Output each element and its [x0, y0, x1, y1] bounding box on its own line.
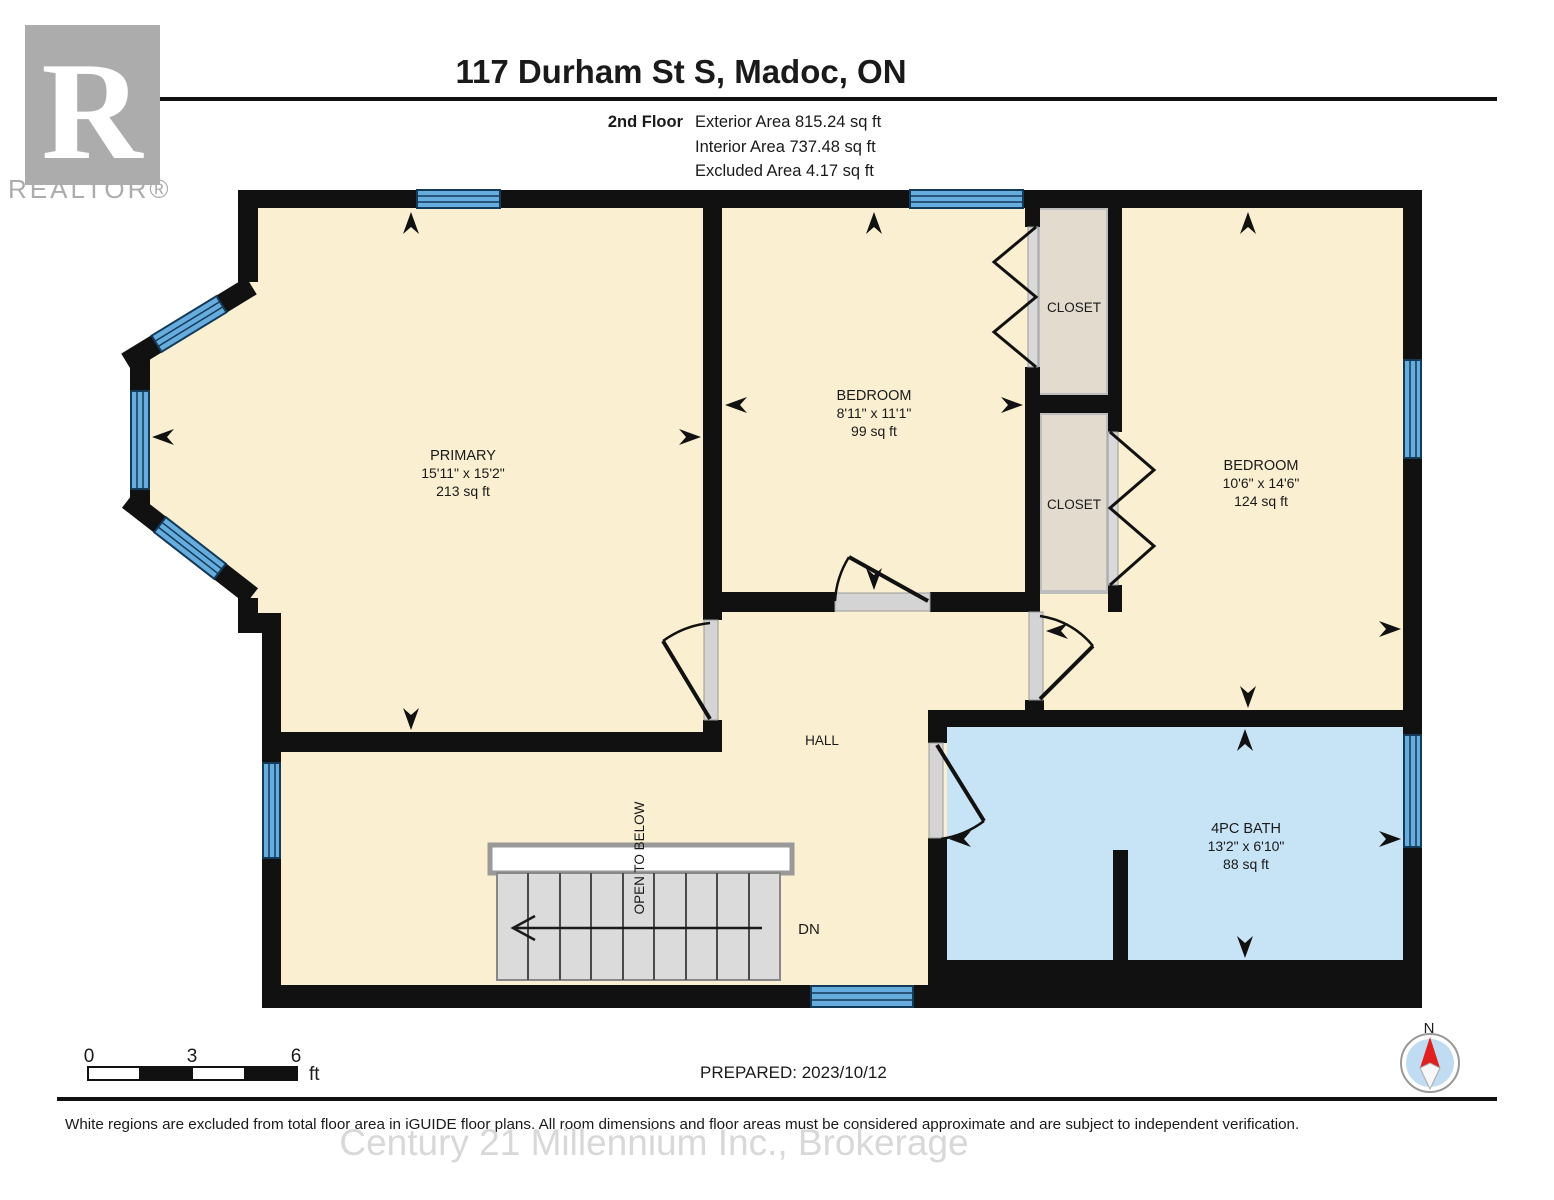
realtor-logo-text: REALTOR® — [8, 174, 172, 204]
scale-tick-6: 6 — [291, 1046, 302, 1067]
wall-closet1-top-stub — [1025, 208, 1040, 227]
stairs-down-label: DN — [798, 921, 820, 938]
scale-tick-3: 3 — [187, 1046, 198, 1067]
wall-right — [1403, 190, 1422, 1008]
wall-bath-left-upper — [928, 710, 947, 743]
realtor-logo-letter: R — [41, 34, 144, 189]
wall-closet2-left — [1025, 413, 1040, 592]
footer-divider — [57, 1097, 1497, 1101]
room-dims: 10'6" x 14'6" — [1223, 475, 1300, 491]
room-area: 99 sq ft — [851, 423, 897, 439]
compass-icon: N — [1401, 1020, 1459, 1092]
wall-bath-stub — [1113, 850, 1128, 985]
floor-label: 2nd Floor — [608, 113, 684, 131]
wall-closet2-right-top-stub — [1108, 413, 1122, 432]
header: 117 Durham St S, Madoc, ON 2nd Floor Ext… — [57, 53, 1497, 180]
room-dims: 13'2" x 6'10" — [1208, 838, 1285, 854]
room-closet1-label: CLOSET — [1047, 300, 1101, 315]
room-dims: 15'11" x 15'2" — [421, 465, 505, 481]
scale-bar: 0 3 6 ft — [84, 1046, 321, 1085]
page-title: 117 Durham St S, Madoc, ON — [455, 53, 906, 90]
window-hall-left — [263, 763, 280, 858]
room-name: PRIMARY — [430, 448, 496, 464]
wall-bedroom1-bottom-right — [930, 592, 1040, 612]
scale-unit-label: ft — [309, 1064, 320, 1085]
wall-bath-left-lower — [928, 838, 947, 985]
wall-closet2-right-bottom-stub — [1108, 585, 1122, 612]
room-bath-floor — [947, 727, 1403, 960]
room-name: BEDROOM — [837, 388, 912, 404]
window-bedroom2-right — [1404, 360, 1421, 458]
realtor-logo-icon: R REALTOR® — [8, 25, 172, 204]
wall-bath-top — [928, 710, 1422, 727]
room-area: 124 sq ft — [1234, 493, 1288, 509]
room-area: 213 sq ft — [436, 483, 490, 499]
window-primary-top — [417, 190, 500, 208]
floor-plan-page: 117 Durham St S, Madoc, ON 2nd Floor Ext… — [0, 0, 1554, 1200]
wall-closet1-right — [1108, 208, 1122, 395]
window-bath-right — [1404, 735, 1421, 847]
floor-plan-canvas: 117 Durham St S, Madoc, ON 2nd Floor Ext… — [0, 0, 1554, 1200]
room-area: 88 sq ft — [1223, 856, 1269, 872]
window-hall-bottom — [811, 986, 913, 1007]
brokerage-watermark: Century 21 Millennium Inc., Brokerage — [339, 1122, 968, 1163]
wall-bay-upper — [238, 190, 258, 282]
wall-top — [238, 190, 1422, 208]
window-bay-left — [131, 391, 149, 489]
wall-primary-bottom — [281, 732, 722, 752]
interior-area-label: Interior Area 737.48 sq ft — [695, 138, 876, 156]
wall-bay-lower — [238, 598, 258, 633]
scale-tick-0: 0 — [84, 1046, 95, 1067]
exterior-area-label: Exterior Area 815.24 sq ft — [695, 113, 882, 131]
wall-bath-bottom — [928, 960, 1422, 985]
wall-primary-bedroom1 — [703, 208, 722, 620]
wall-closet-divider — [1025, 395, 1122, 413]
window-bedroom1-top — [910, 190, 1023, 208]
room-dims: 8'11" x 11'1" — [837, 405, 912, 421]
room-name: BEDROOM — [1224, 458, 1299, 474]
header-divider — [57, 97, 1497, 101]
wall-bedroom1-bottom-left — [703, 592, 835, 612]
prepared-date: PREPARED: 2023/10/12 — [700, 1063, 887, 1082]
room-closet2-label: CLOSET — [1047, 497, 1101, 512]
room-hall-label: HALL — [805, 733, 839, 748]
excluded-area-label: Excluded Area 4.17 sq ft — [695, 162, 874, 180]
open-to-below-label: OPEN TO BELOW — [632, 801, 647, 914]
room-name: 4PC BATH — [1211, 821, 1281, 837]
footer: White regions are excluded from total fl… — [57, 1097, 1497, 1163]
